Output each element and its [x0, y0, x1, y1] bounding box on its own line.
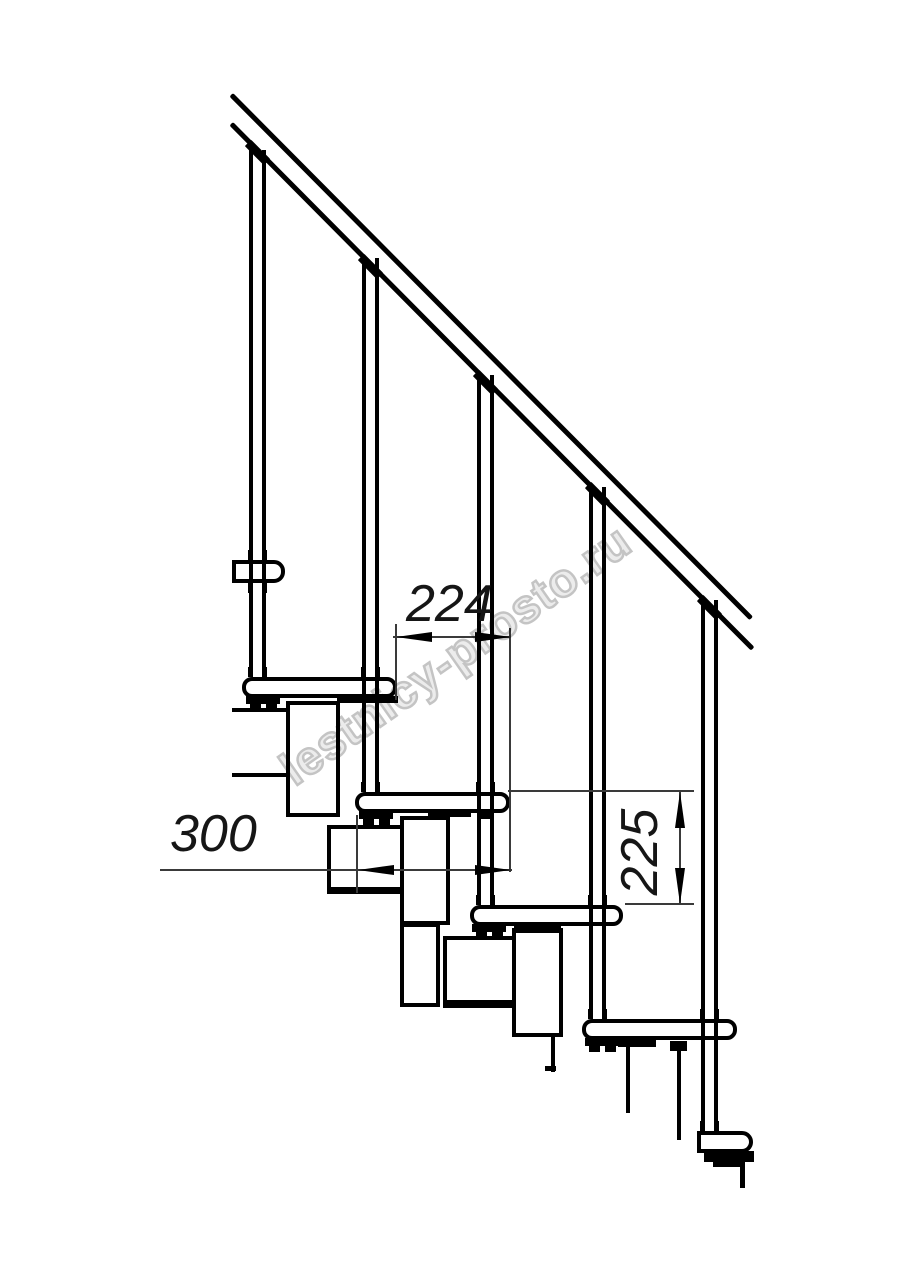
baluster-collar — [700, 1009, 719, 1019]
baluster-collar — [476, 782, 495, 792]
baluster-5 — [701, 600, 718, 1131]
tread1-mount-tab — [266, 704, 277, 710]
stringer-module-5 — [443, 936, 518, 1008]
dim-225-arrow-up — [675, 792, 685, 828]
baluster-collar — [700, 1121, 719, 1131]
tread1-mount-tab — [250, 704, 261, 710]
baluster-4 — [589, 487, 606, 1019]
tread2-mount-tab — [363, 819, 374, 825]
dim-224-arrow-right — [475, 632, 511, 642]
baluster-collar — [361, 782, 380, 792]
stringer-module-6 — [512, 928, 563, 1037]
stringer-module-2 — [327, 825, 404, 894]
dim-shared-extension-right — [509, 628, 511, 872]
staircase-drawing-sheet: 224 300 225 lestnicy-prosto.ru — [0, 0, 914, 1280]
baluster-2 — [362, 258, 379, 792]
baluster-collar — [588, 1009, 607, 1019]
baluster-collar — [248, 583, 267, 593]
lower-flight-cut-line-v — [740, 1162, 745, 1188]
stringer-module-1 — [286, 701, 340, 817]
tread3-mount-bar — [514, 926, 561, 933]
stringer-tail-foot — [545, 1066, 556, 1071]
baluster-collar — [588, 895, 607, 905]
dim-label-300: 300 — [170, 808, 257, 860]
dim-300-extension-left — [356, 815, 358, 893]
baluster-1 — [249, 150, 266, 677]
lower-flight-tread — [697, 1131, 753, 1153]
baluster-collar — [361, 667, 380, 677]
dim-224-arrow-left — [396, 632, 432, 642]
dim-225-arrow-down — [675, 868, 685, 904]
baluster-collar — [248, 667, 267, 677]
baluster-collar — [248, 550, 267, 560]
tread4-mount-tab — [670, 1041, 687, 1051]
tread4-mount-tab — [605, 1046, 616, 1052]
tread4-mount-tab — [589, 1046, 600, 1052]
tread2-mount-tab — [379, 819, 390, 825]
stringer-cut-line-left — [626, 1047, 630, 1113]
stringer-cut-line-right — [677, 1047, 681, 1140]
dim-label-224: 224 — [406, 578, 493, 630]
tread3-mount-tab — [476, 932, 487, 938]
stringer-module-4 — [400, 923, 440, 1007]
dim-300-line — [160, 869, 512, 871]
dim-300-arrow-left — [358, 865, 394, 875]
dim-300-arrow-right — [475, 865, 511, 875]
tread4-mount-bar — [618, 1040, 656, 1047]
dim-label-225: 225 — [614, 802, 666, 902]
stringer-module-top — [232, 708, 290, 777]
baluster-collar — [476, 895, 495, 905]
tread3-mount-tab — [492, 932, 503, 938]
dim-225-extension-top — [508, 790, 694, 792]
